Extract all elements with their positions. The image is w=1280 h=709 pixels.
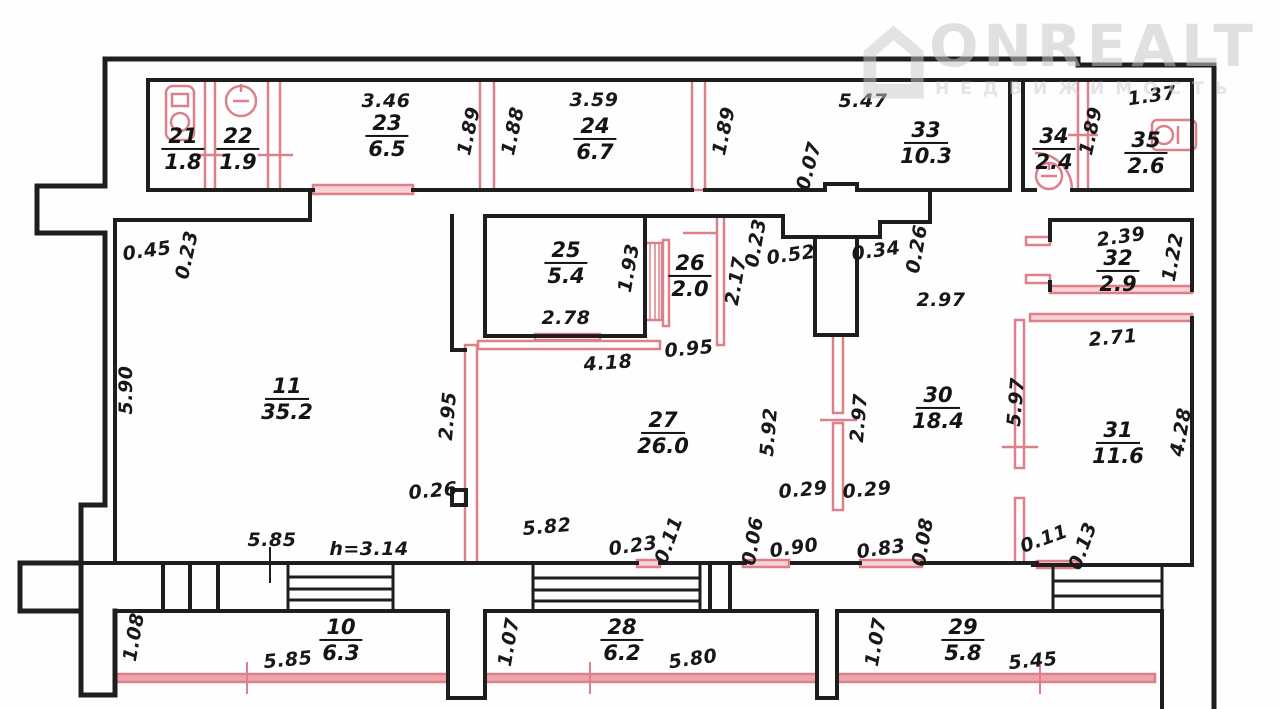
room-label-25: 255.4 [544, 239, 587, 287]
dim-label: 0.26 [408, 478, 459, 504]
dim-label: 5.82 [522, 514, 573, 540]
room-label-10: 106.3 [319, 616, 362, 664]
room-label-30: 3018.4 [912, 384, 964, 432]
room-label-35: 352.6 [1124, 129, 1167, 177]
dim-label: 5.47 [839, 90, 888, 112]
room-label-28: 286.2 [600, 616, 643, 664]
room-label-21: 211.8 [161, 125, 204, 173]
dim-label: 5.85 [248, 529, 297, 551]
dim-label: 5.45 [1008, 648, 1059, 674]
dim-label: 4.18 [583, 350, 633, 375]
dim-label: 2.97 [917, 289, 966, 311]
dim-label: 0.95 [664, 336, 715, 362]
dim-label: 5.92 [756, 407, 782, 458]
dim-label: 2.97 [846, 393, 872, 444]
dim-label: 0.29 [778, 477, 829, 503]
dim-label: 0.29 [842, 477, 893, 503]
room-label-32: 322.9 [1096, 247, 1139, 295]
dim-label: 2.71 [1088, 325, 1139, 351]
dim-label: 2.78 [542, 307, 591, 329]
room-label-33: 3310.3 [900, 119, 952, 167]
dim-label: 2.95 [435, 391, 461, 442]
room-label-31: 3111.6 [1092, 419, 1144, 467]
dim-label: 5.85 [263, 647, 314, 673]
dim-label: 5.90 [115, 366, 137, 415]
room-label-26: 262.0 [668, 252, 711, 300]
room-label-29: 295.8 [941, 616, 984, 664]
room-label-34: 342.4 [1032, 125, 1075, 173]
height-note: h=3.14 [329, 538, 408, 560]
room-label-27: 2726.0 [637, 409, 689, 457]
room-label-23: 236.5 [365, 112, 408, 160]
floorplan-page: 211.8 221.9 236.5 246.7 3310.3 342.4 352… [0, 0, 1280, 709]
dim-label: 3.59 [570, 89, 619, 111]
dim-label: 5.97 [1003, 377, 1029, 428]
room-label-24: 246.7 [573, 115, 616, 163]
dim-label: 3.46 [362, 90, 411, 112]
room-label-22: 221.9 [216, 125, 259, 173]
room-label-11: 1135.2 [261, 375, 313, 423]
